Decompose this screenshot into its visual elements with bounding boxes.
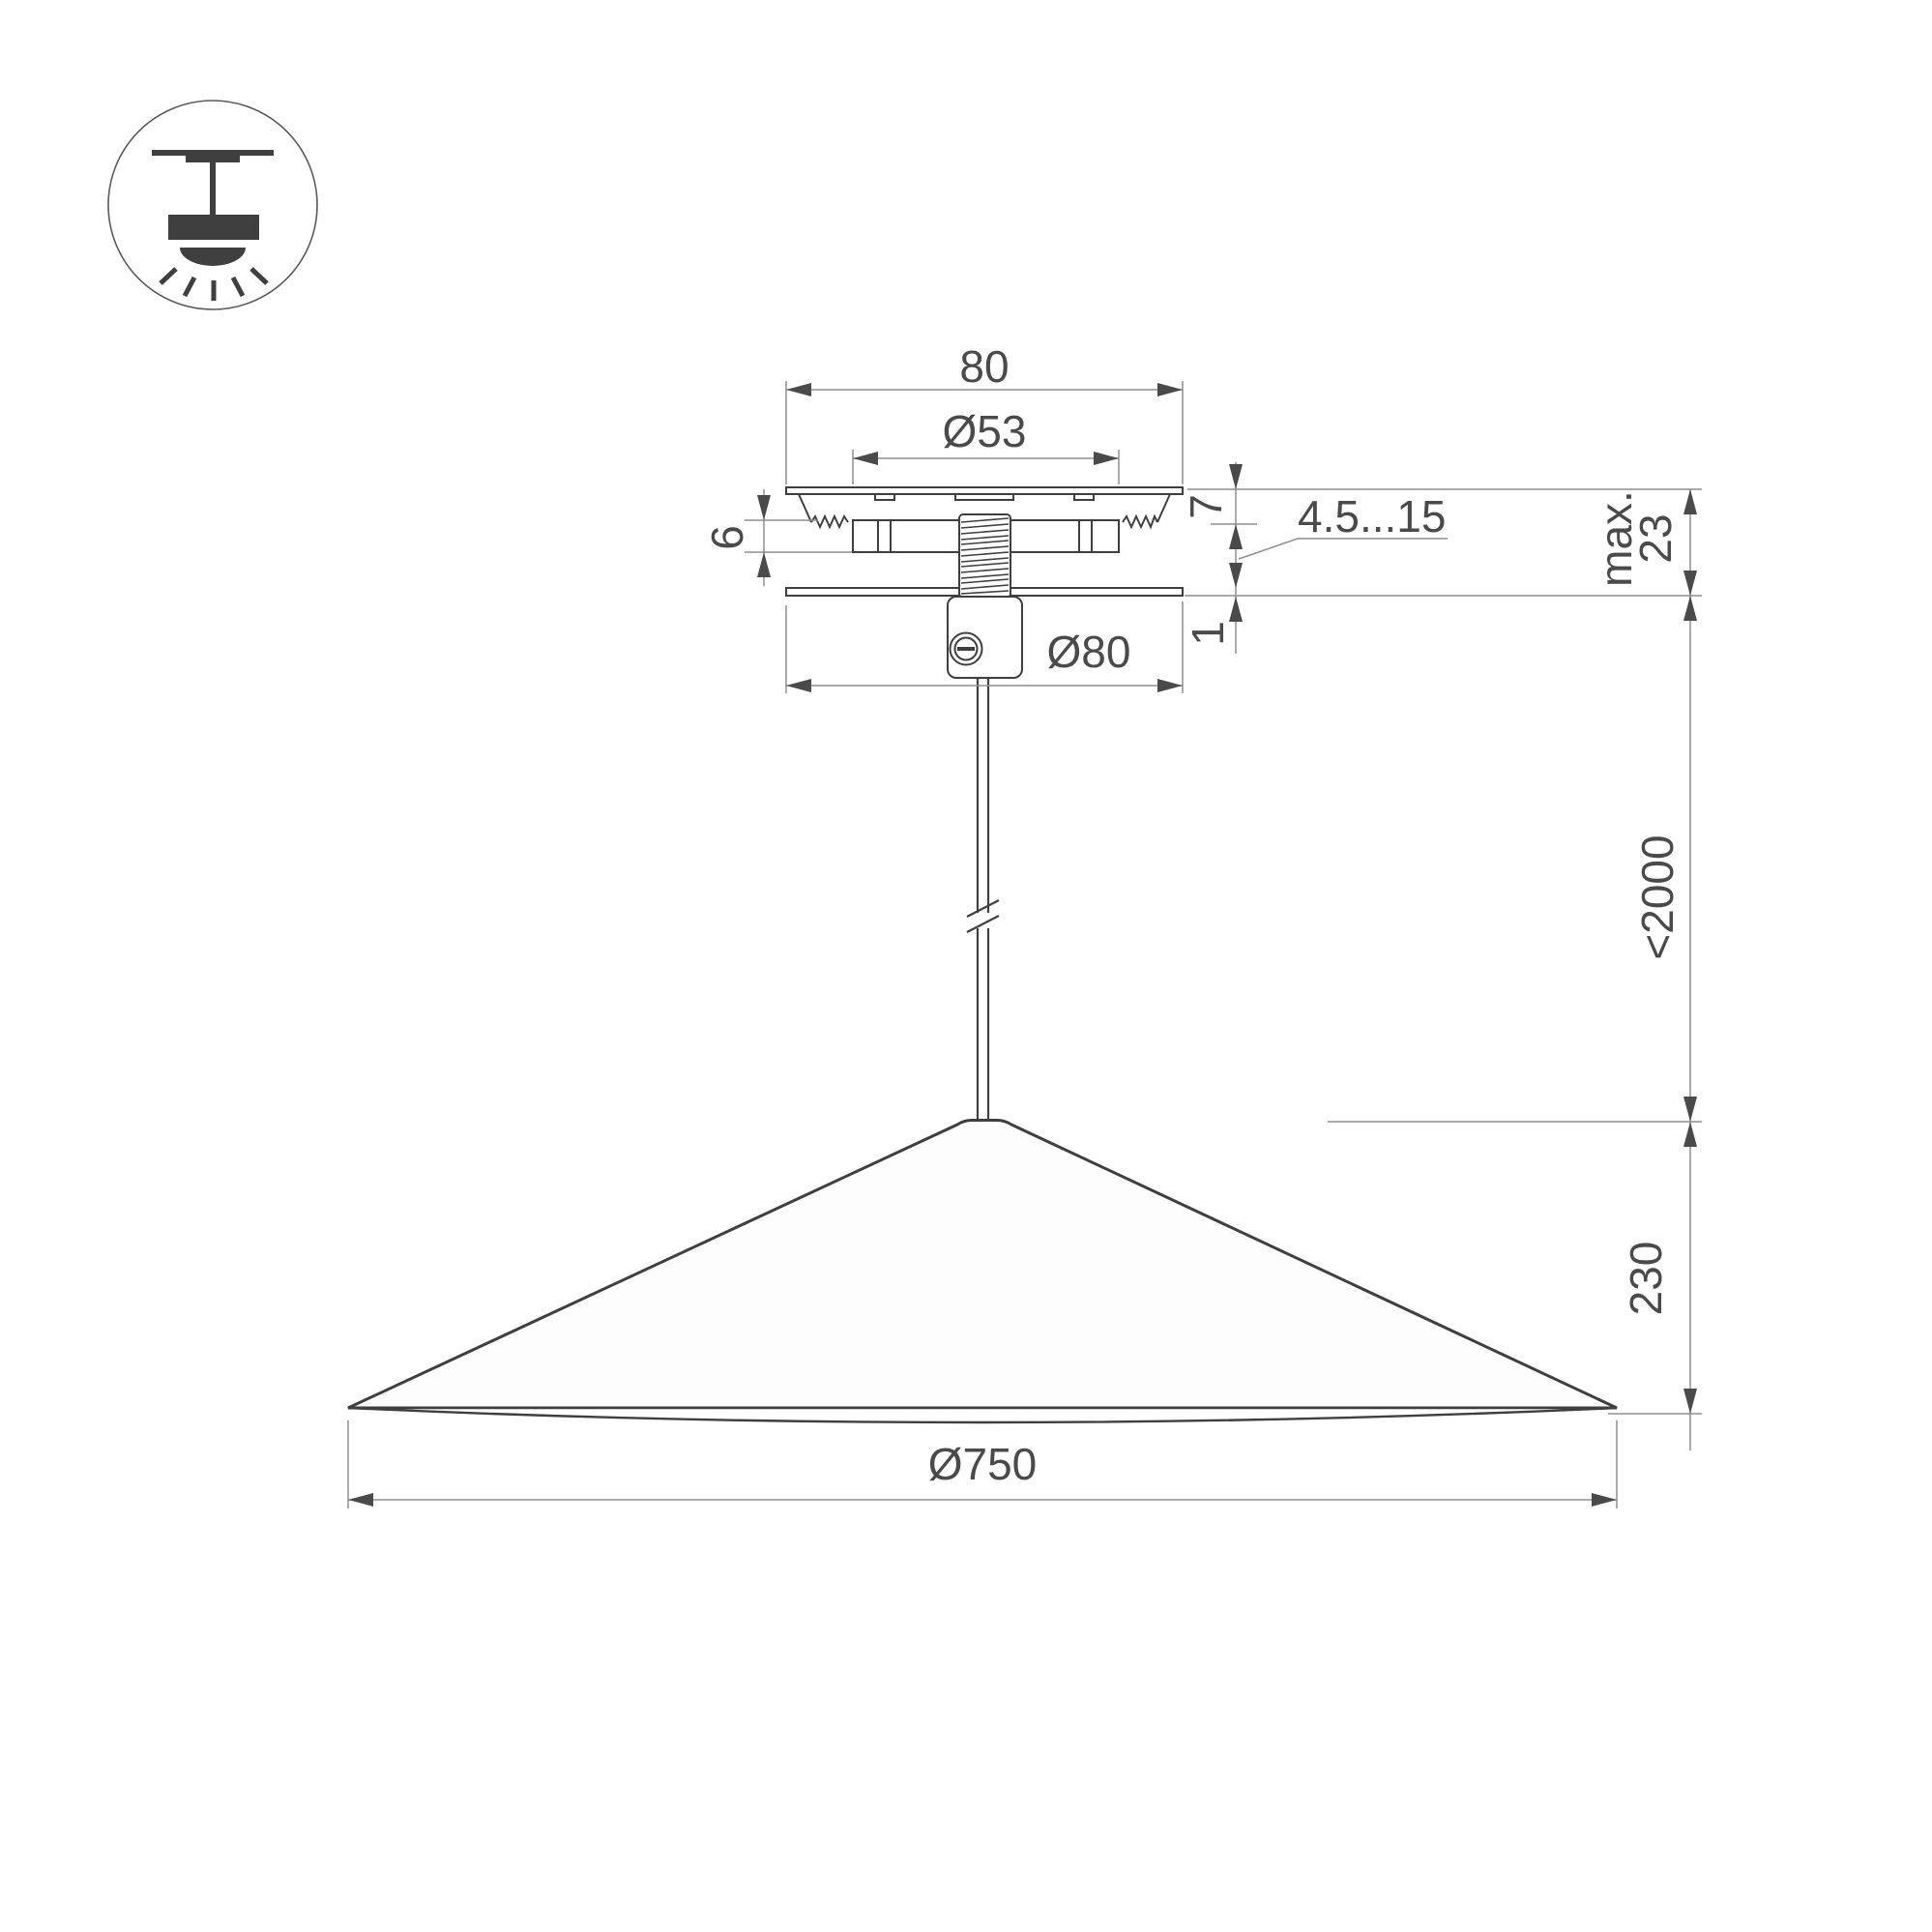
cable-gripper-box xyxy=(948,597,1022,678)
canopy-top-plate xyxy=(786,487,1183,494)
canopy-plate-notch-center xyxy=(955,494,1013,500)
icon-light-dome xyxy=(180,248,246,266)
dim-suspension-length: <2000 xyxy=(1632,834,1683,959)
technical-drawing-page: 80 Ø53 Ø80 Ø750 4.5...15 7 6 1 max. 23 <… xyxy=(0,0,1932,1932)
cone-shade xyxy=(348,1121,1617,1423)
pendant-ceiling-mount-icon xyxy=(108,101,317,309)
dim-shade-height-230: 230 xyxy=(1621,1242,1671,1316)
dim-spring-height-6: 6 xyxy=(702,525,752,550)
canopy-plate-notch-right xyxy=(1074,494,1094,500)
shade-bottom-rim xyxy=(348,1408,1617,1422)
icon-mount-bracket xyxy=(186,156,240,162)
dim-plate-thickness-1: 1 xyxy=(1183,621,1233,646)
dim-ceiling-range: 4.5...15 xyxy=(1298,491,1446,542)
icon-lamp-body xyxy=(168,215,259,240)
shade-cone-outline xyxy=(348,1121,1617,1409)
canopy-plate-notch-left xyxy=(875,494,894,500)
dim-canopy-width: 80 xyxy=(959,341,1009,392)
cable-break-slash xyxy=(967,916,999,932)
dim-shade-diameter: Ø750 xyxy=(928,1439,1038,1489)
dim-ring-diameter: Ø53 xyxy=(943,406,1027,456)
icon-ceiling-line xyxy=(152,150,274,156)
suspension-cable xyxy=(967,678,999,1119)
leader-line xyxy=(1239,539,1448,559)
dim-max-depth-23: 23 xyxy=(1630,513,1681,563)
cable-break-slash xyxy=(967,900,999,917)
drawing-canvas: 80 Ø53 Ø80 Ø750 4.5...15 7 6 1 max. 23 <… xyxy=(0,0,1932,1932)
icon-stem xyxy=(210,162,216,215)
spring-zigzag-left xyxy=(811,516,848,527)
icon-light-rays xyxy=(161,269,267,301)
canopy-flange-left xyxy=(799,494,811,522)
canopy-flange-right xyxy=(1157,494,1170,522)
dim-plate-thickness-7: 7 xyxy=(1181,494,1231,519)
spring-zigzag-right xyxy=(1123,516,1157,527)
dim-cover-diameter: Ø80 xyxy=(1047,627,1131,677)
